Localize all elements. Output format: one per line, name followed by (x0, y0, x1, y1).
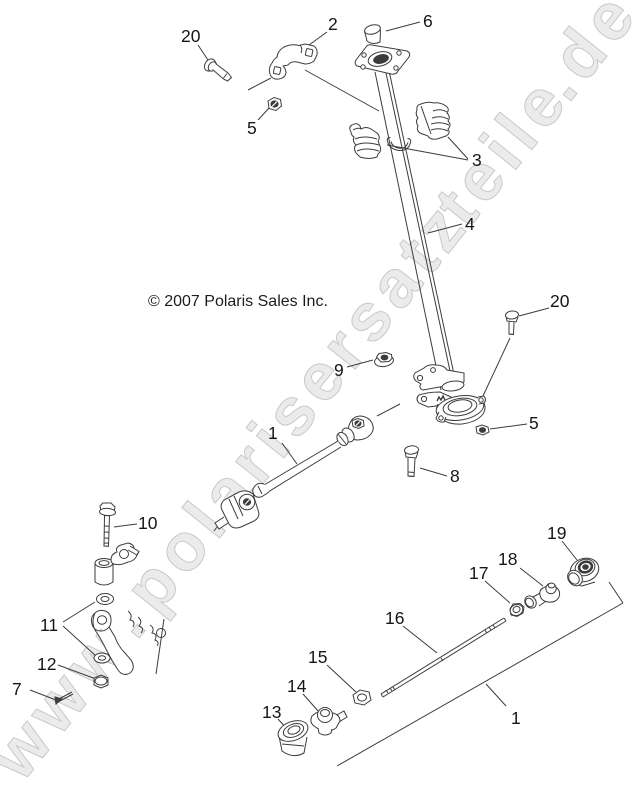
svg-text:2: 2 (328, 14, 338, 34)
svg-text:5: 5 (247, 118, 257, 138)
svg-text:8: 8 (450, 466, 460, 486)
svg-text:6: 6 (423, 11, 433, 31)
svg-text:18: 18 (498, 549, 517, 569)
svg-text:9: 9 (334, 360, 344, 380)
svg-text:© 2007 Polaris Sales Inc.: © 2007 Polaris Sales Inc. (148, 293, 328, 310)
svg-text:16: 16 (385, 608, 404, 628)
svg-text:12: 12 (37, 654, 56, 674)
svg-text:14: 14 (287, 676, 307, 696)
svg-text:20: 20 (181, 26, 201, 46)
svg-text:4: 4 (465, 214, 475, 234)
svg-text:19: 19 (547, 523, 566, 543)
svg-text:10: 10 (138, 513, 158, 533)
svg-text:7: 7 (12, 679, 22, 699)
svg-text:15: 15 (308, 647, 327, 667)
svg-text:1: 1 (511, 708, 521, 728)
svg-text:11: 11 (40, 615, 58, 635)
svg-text:5: 5 (529, 413, 539, 433)
svg-text:3: 3 (472, 150, 482, 170)
svg-text:20: 20 (550, 291, 570, 311)
svg-text:1: 1 (268, 423, 278, 443)
svg-text:17: 17 (469, 563, 488, 583)
